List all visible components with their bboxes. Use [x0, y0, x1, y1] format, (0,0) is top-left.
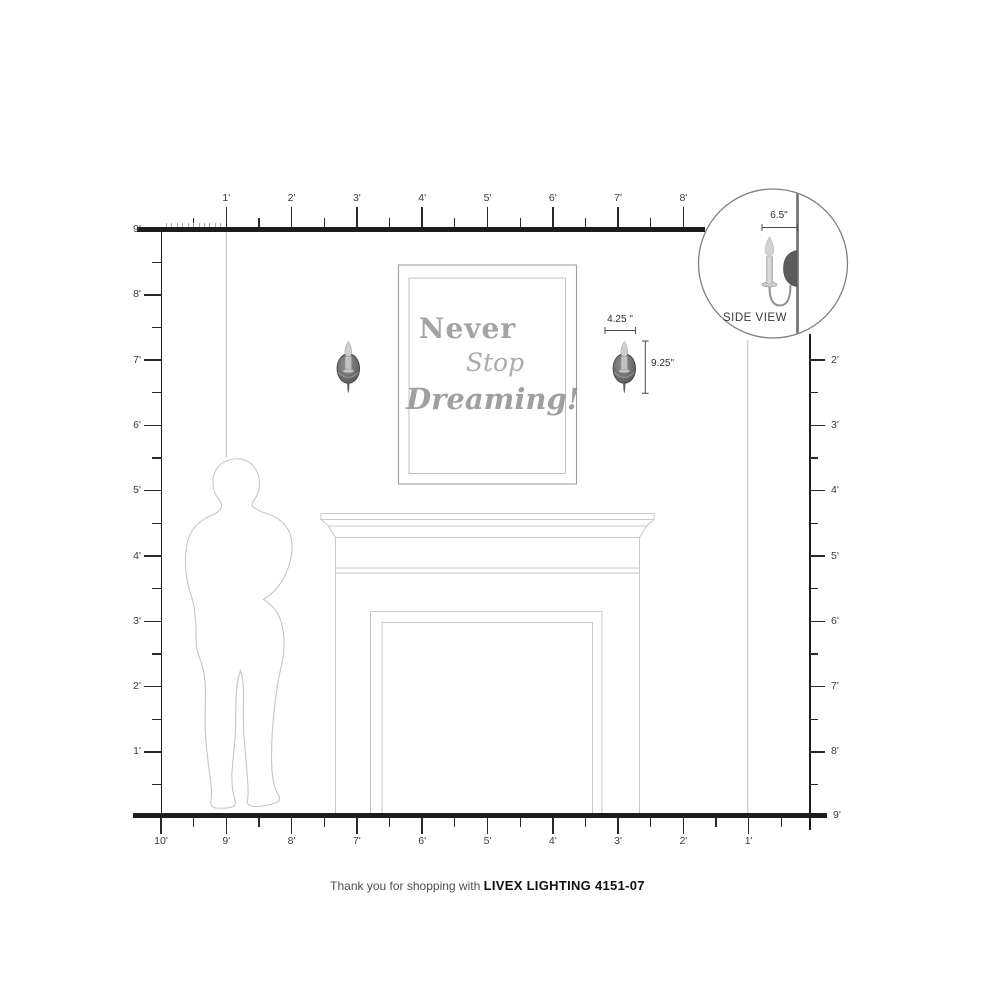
- ruler-tick: [810, 653, 818, 654]
- bottom-ruler-label: 6': [407, 835, 437, 848]
- ruler-tick: [152, 719, 162, 720]
- ruler-tick: [144, 425, 162, 427]
- bottom-ruler-label: 7': [342, 835, 372, 848]
- ruler-tick: [144, 555, 162, 557]
- ruler-tick: [324, 818, 325, 827]
- ruler-tick: [810, 555, 825, 557]
- person-silhouette: [186, 459, 292, 808]
- left-ruler-label: 1': [111, 745, 141, 758]
- ruler-tick: [715, 818, 716, 827]
- side-view-label: SIDE VIEW: [723, 312, 787, 324]
- ruler-tick: [152, 653, 162, 654]
- right-ruler-label: 6': [831, 615, 861, 628]
- ruler-tick: [182, 223, 183, 228]
- ruler-tick: [781, 818, 782, 827]
- ruler-tick: [226, 818, 228, 834]
- ruler-tick: [810, 751, 825, 753]
- ruler-tick: [810, 784, 818, 785]
- ruler-tick: [810, 621, 825, 623]
- left-ruler-label: 9': [111, 223, 141, 236]
- ruler-tick: [152, 784, 162, 785]
- ruler-tick: [810, 392, 818, 393]
- ruler-tick: [144, 621, 162, 623]
- bottom-ruler-label: 1': [734, 835, 764, 848]
- ruler-tick: [421, 207, 423, 227]
- ruler-tick: [258, 818, 259, 827]
- width-dimension-line: [605, 327, 636, 334]
- bottom-ruler-label: 8': [277, 835, 307, 848]
- ruler-tick: [585, 218, 586, 228]
- footer-product-name: LIVEX LIGHTING 4151-07: [484, 878, 645, 893]
- ruler-tick: [144, 294, 162, 296]
- left-ruler-label: 2': [111, 680, 141, 693]
- ruler-tick: [226, 207, 228, 227]
- ruler-tick: [193, 818, 194, 827]
- bottom-ruler-label: 2': [668, 835, 698, 848]
- ruler-tick: [487, 207, 489, 227]
- top-ruler-label: 8': [668, 192, 698, 205]
- wall-sconce-front-left-icon: [337, 341, 360, 393]
- ruler-tick: [209, 223, 210, 228]
- right-ruler-label: 3': [831, 419, 861, 432]
- ruler-tick: [552, 207, 554, 227]
- left-ruler-label: 3': [111, 615, 141, 628]
- bottom-ruler-label: 5': [473, 835, 503, 848]
- ruler-tick: [487, 818, 489, 834]
- ruler-tick: [454, 218, 455, 228]
- sconce-height-label: 9.25": [651, 358, 691, 370]
- ruler-tick: [585, 818, 586, 827]
- ruler-tick: [144, 359, 162, 361]
- ruler-tick: [389, 218, 390, 228]
- ruler-tick: [810, 425, 825, 427]
- right-ruler-line: [809, 334, 811, 830]
- right-ruler-label: 7': [831, 680, 861, 693]
- ruler-tick: [144, 751, 162, 753]
- ruler-tick: [144, 686, 162, 688]
- ruler-tick: [193, 223, 194, 228]
- ruler-tick: [152, 327, 162, 328]
- ruler-tick: [454, 818, 455, 827]
- ruler-tick: [199, 223, 200, 228]
- height-dimension-line: [642, 341, 649, 393]
- ruler-tick: [258, 218, 259, 228]
- right-ruler-label: 4': [831, 484, 861, 497]
- fireplace: [321, 514, 654, 814]
- ruler-tick: [152, 262, 162, 263]
- ruler-tick: [171, 223, 172, 228]
- ruler-tick: [220, 223, 221, 228]
- top-ruler-label: 7': [603, 192, 633, 205]
- artwork-text-line1: Never: [417, 312, 518, 345]
- ruler-tick: [520, 818, 521, 827]
- left-ruler-label: 4': [111, 550, 141, 563]
- ruler-tick: [810, 588, 818, 589]
- ruler-tick: [291, 818, 293, 834]
- left-ruler-label: 5': [111, 484, 141, 497]
- top-ruler-label: 3': [342, 192, 372, 205]
- ruler-tick: [356, 818, 358, 834]
- bottom-ruler-label: 4': [538, 835, 568, 848]
- sconce-depth-label: 6.5": [759, 210, 799, 222]
- ruler-tick: [291, 207, 293, 227]
- ruler-tick: [144, 490, 162, 492]
- right-ruler-label: 9': [833, 809, 863, 822]
- top-wall-line: [137, 227, 705, 232]
- ruler-tick: [152, 588, 162, 589]
- footer-prefix: Thank you for shopping with: [330, 879, 483, 893]
- ruler-tick: [166, 223, 167, 228]
- ruler-tick: [356, 207, 358, 227]
- ruler-tick: [552, 818, 554, 834]
- artwork-text-line2: Stop: [445, 348, 545, 377]
- ruler-tick: [152, 457, 162, 458]
- ruler-tick: [324, 218, 325, 228]
- ruler-tick: [389, 818, 390, 827]
- right-ruler-label: 8': [831, 745, 861, 758]
- top-ruler-label: 6': [538, 192, 568, 205]
- right-ruler-label: 5': [831, 550, 861, 563]
- ruler-tick: [683, 207, 685, 227]
- bottom-ruler-label: 9': [211, 835, 241, 848]
- footer-caption: Thank you for shopping with LIVEX LIGHTI…: [0, 877, 975, 895]
- ruler-tick: [152, 392, 162, 393]
- sconce-width-label: 4.25 ": [597, 314, 643, 326]
- artwork-text-line3: Dreaming!: [406, 382, 567, 416]
- dimension-diagram: 1'2'3'4'5'6'7'8'9'8'7'6'5'4'3'2'1'2'3'4'…: [0, 0, 1000, 1000]
- ruler-tick: [617, 818, 619, 834]
- ruler-tick: [650, 818, 651, 827]
- floor-line: [133, 813, 827, 818]
- top-ruler-label: 1': [211, 192, 241, 205]
- left-ruler-label: 7': [111, 354, 141, 367]
- left-ruler-label: 8': [111, 288, 141, 301]
- ruler-tick: [160, 818, 162, 834]
- left-ruler-label: 6': [111, 419, 141, 432]
- bottom-ruler-label: 10': [146, 835, 176, 848]
- left-ruler-line: [161, 227, 163, 823]
- ruler-tick: [810, 490, 825, 492]
- ruler-tick: [188, 223, 189, 228]
- ruler-tick: [650, 218, 651, 228]
- right-ruler-label: 2': [831, 354, 861, 367]
- diagram-artwork: [0, 0, 1000, 1000]
- ruler-tick: [617, 207, 619, 227]
- top-ruler-label: 5': [473, 192, 503, 205]
- bottom-ruler-label: 3': [603, 835, 633, 848]
- ruler-tick: [810, 686, 825, 688]
- wall-sconce-front-right-icon: [613, 341, 636, 393]
- top-ruler-label: 2': [277, 192, 307, 205]
- ruler-tick: [520, 218, 521, 228]
- ruler-tick: [421, 818, 423, 834]
- top-ruler-label: 4': [407, 192, 437, 205]
- ruler-tick: [152, 523, 162, 524]
- ruler-tick: [177, 223, 178, 228]
- ruler-tick: [810, 359, 825, 361]
- ruler-tick: [810, 457, 818, 458]
- ruler-tick: [215, 223, 216, 228]
- ruler-tick: [810, 719, 818, 720]
- ruler-tick: [810, 523, 818, 524]
- ruler-tick: [683, 818, 685, 834]
- ruler-tick: [204, 223, 205, 228]
- ruler-tick: [748, 818, 750, 834]
